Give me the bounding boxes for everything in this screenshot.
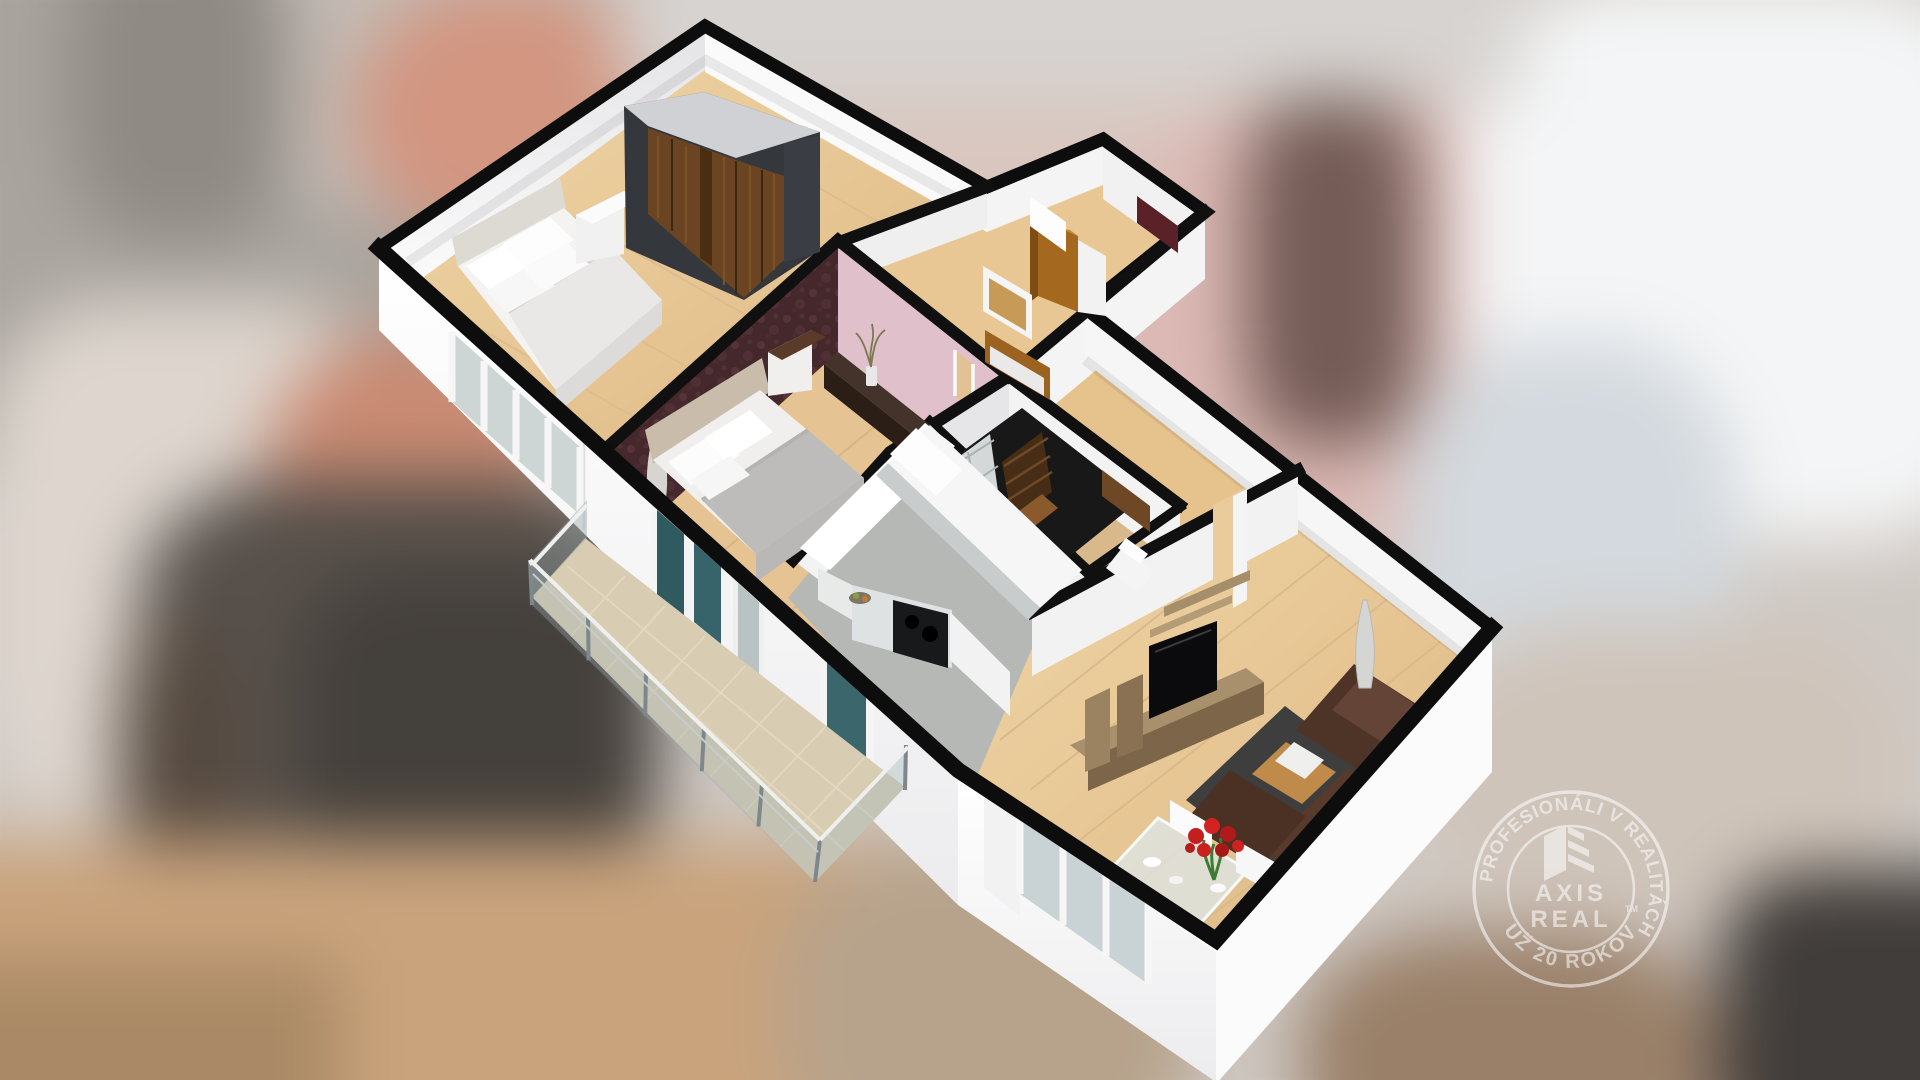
svg-text:TM: TM — [1625, 904, 1638, 914]
svg-text:AXIS: AXIS — [1535, 880, 1607, 907]
svg-text:REAL: REAL — [1530, 906, 1611, 933]
